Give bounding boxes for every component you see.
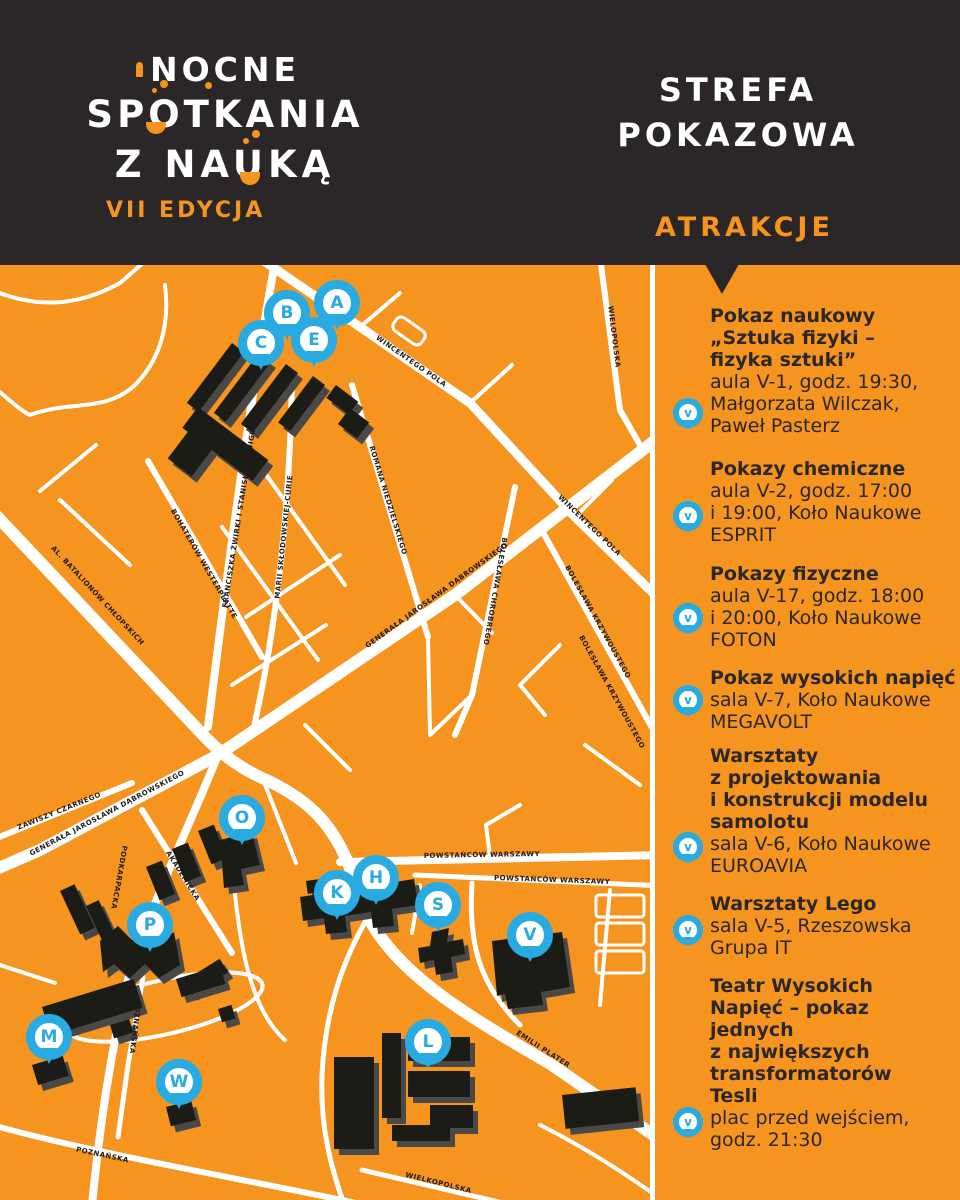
pin-tail-icon xyxy=(683,707,693,722)
attraction-details: sala V-6, Koło Naukowe EUROAVIA xyxy=(710,833,956,877)
attraction-details: aula V-17, godz. 18:00 i 20:00, Koło Nau… xyxy=(710,585,956,651)
venue-pin[interactable]: V xyxy=(673,501,703,531)
map-marker-v[interactable]: V xyxy=(507,912,553,958)
map-marker-p[interactable]: P xyxy=(127,902,173,948)
map-canvas: WINCENTEGO POLA WINCENTEGO POLA GENERAŁA… xyxy=(0,265,655,1200)
door-accent-icon xyxy=(136,62,143,77)
venue-pin[interactable]: V xyxy=(673,603,703,633)
pin-tail-icon xyxy=(522,946,538,970)
pin-tail-icon xyxy=(683,1129,693,1144)
attraction-title: Warsztaty Lego xyxy=(710,893,956,915)
logo-edition: VII EDYCJA xyxy=(106,198,390,223)
attraction-title: Pokaz naukowy „Sztuka fizyki – fizyka sz… xyxy=(710,305,956,371)
logo-line-3: Z NAUKĄ xyxy=(60,140,390,190)
marker-letter: W xyxy=(170,1072,189,1092)
attraction-entry: V Teatr Wysokich Napięć – pokaz jednych … xyxy=(664,975,956,1151)
marker-letter: O xyxy=(235,808,249,828)
pin-tail-icon xyxy=(420,1053,436,1077)
attraction-entry: V Pokazy chemiczne aula V-2, godz. 17:00… xyxy=(664,458,956,546)
street-label: POZNAŃSKA xyxy=(75,1145,129,1165)
flask-bubble-icon xyxy=(152,88,157,93)
street-label: ROMANA NIEDZIELSKIEGO xyxy=(367,445,408,556)
zone-title-line-1: STREFA xyxy=(578,68,898,113)
road-sklodowskiej xyxy=(252,383,292,735)
marker-letter: A xyxy=(330,293,343,313)
pin-tail-icon xyxy=(683,625,693,640)
marker-letter: P xyxy=(144,915,156,935)
pin-tail-icon xyxy=(253,354,269,378)
logo-line-2: SPOTKANIA xyxy=(60,90,390,140)
street-label: POWSTAŃCÓW WARSZAWY xyxy=(494,873,611,886)
attraction-entry: V Pokazy fizyczne aula V-17, godz. 18:00… xyxy=(664,563,956,651)
zone-title-line-2: POKAZOWA xyxy=(578,113,898,158)
pin-tail-icon xyxy=(171,1093,187,1117)
road-krzywoustego xyxy=(540,527,655,733)
venue-pin-letter: V xyxy=(684,693,692,707)
map-marker-c[interactable]: C xyxy=(238,320,284,366)
attractions-heading: ATRAKCJE xyxy=(655,212,834,243)
attraction-entry: V Pokaz naukowy „Sztuka fizyki – fizyka … xyxy=(664,305,956,437)
venue-pin-letter: V xyxy=(684,509,692,523)
pin-tail-icon xyxy=(430,916,446,940)
pin-tail-icon xyxy=(234,829,250,853)
venue-pin[interactable]: V xyxy=(673,915,703,945)
street-label: PODKARPACKA xyxy=(109,845,128,910)
marker-letter: K xyxy=(330,883,343,903)
attraction-entry: V Warsztaty Lego sala V-5, Rzeszowska Gr… xyxy=(664,893,956,959)
road-batalionow-emilii-plater xyxy=(0,511,655,1143)
marker-letter: S xyxy=(432,895,444,915)
pin-tail-icon xyxy=(683,937,693,952)
pin-tail-icon xyxy=(41,1048,57,1072)
pin-tail-icon xyxy=(329,904,345,928)
attraction-entry: V Pokaz wysokich napięć sala V-7, Koło N… xyxy=(664,667,956,733)
marker-letter: M xyxy=(41,1027,58,1047)
flask-bubble-icon xyxy=(160,80,168,88)
attraction-details: sala V-7, Koło Naukowe MEGAVOLT xyxy=(710,689,956,733)
header-band: NOCNE SPOTKANIA Z NAUKĄ VII EDYCJA STREF… xyxy=(0,0,960,265)
flask-bubble-icon xyxy=(243,138,249,144)
pin-tail-icon xyxy=(683,420,693,435)
map-marker-o[interactable]: O xyxy=(219,795,265,841)
marker-letter: H xyxy=(369,868,383,888)
marker-letter: B xyxy=(281,303,294,323)
attraction-entry: V Warsztaty z projektowania i konstrukcj… xyxy=(664,745,956,877)
pin-tail-icon xyxy=(683,854,693,869)
attraction-title: Pokaz wysokich napięć xyxy=(710,667,956,689)
road-poznanska-diag xyxy=(0,1125,375,1200)
pin-tail-icon xyxy=(683,523,693,538)
venue-pin-letter: V xyxy=(684,840,692,854)
zone-title: STREFA POKAZOWA xyxy=(578,68,898,158)
attraction-title: Pokazy fizyczne xyxy=(710,563,956,585)
flask-bubble-icon xyxy=(205,82,212,89)
marker-letter: C xyxy=(255,333,267,353)
header-notch xyxy=(705,264,739,294)
pin-tail-icon xyxy=(306,351,322,375)
event-logo: NOCNE SPOTKANIA Z NAUKĄ VII EDYCJA xyxy=(60,50,390,223)
attraction-title: Teatr Wysokich Napięć – pokaz jednych z … xyxy=(710,975,956,1107)
attraction-title: Warsztaty z projektowania i konstrukcji … xyxy=(710,745,956,833)
road-chrobrego xyxy=(455,487,515,735)
venue-pin[interactable]: V xyxy=(673,832,703,862)
marker-letter: E xyxy=(308,330,320,350)
pin-tail-icon xyxy=(368,889,384,913)
attraction-details: plac przed wejściem, godz. 21:30 xyxy=(710,1107,956,1151)
map-marker-e[interactable]: E xyxy=(291,317,337,363)
venue-pin[interactable]: V xyxy=(673,398,703,428)
marker-letter: L xyxy=(423,1032,434,1052)
venue-pin[interactable]: V xyxy=(673,685,703,715)
venue-pin-letter: V xyxy=(684,611,692,625)
pin-tail-icon xyxy=(142,936,158,960)
venue-pin-letter: V xyxy=(684,1115,692,1129)
attraction-title: Pokazy chemiczne xyxy=(710,458,956,480)
map-marker-m[interactable]: M xyxy=(26,1014,72,1060)
map-marker-h[interactable]: H xyxy=(353,855,399,901)
venue-pin-letter: V xyxy=(684,923,692,937)
poster-root: { "logo": { "line1": "NOCNE", "line2": "… xyxy=(0,0,960,1200)
flask-bubble-icon xyxy=(252,130,260,138)
map-marker-s[interactable]: S xyxy=(415,882,461,928)
attraction-details: aula V-1, godz. 19:30, Małgorzata Wilcza… xyxy=(710,371,956,437)
attraction-details: sala V-5, Rzeszowska Grupa IT xyxy=(710,915,956,959)
campus-map[interactable]: WINCENTEGO POLA WINCENTEGO POLA GENERAŁA… xyxy=(0,265,655,1200)
attraction-details: aula V-2, godz. 17:00 i 19:00, Koło Nauk… xyxy=(710,480,956,546)
map-marker-w[interactable]: W xyxy=(156,1059,202,1105)
campus-buildings xyxy=(32,343,639,1149)
logo-line-1: NOCNE xyxy=(60,50,390,90)
marker-letter: V xyxy=(523,925,536,945)
venue-pin[interactable]: V xyxy=(673,1107,703,1137)
venue-pin-letter: V xyxy=(684,406,692,420)
street-label: MARII SKŁODOWSKIEJ-CURIE xyxy=(274,474,295,599)
map-marker-l[interactable]: L xyxy=(405,1019,451,1065)
